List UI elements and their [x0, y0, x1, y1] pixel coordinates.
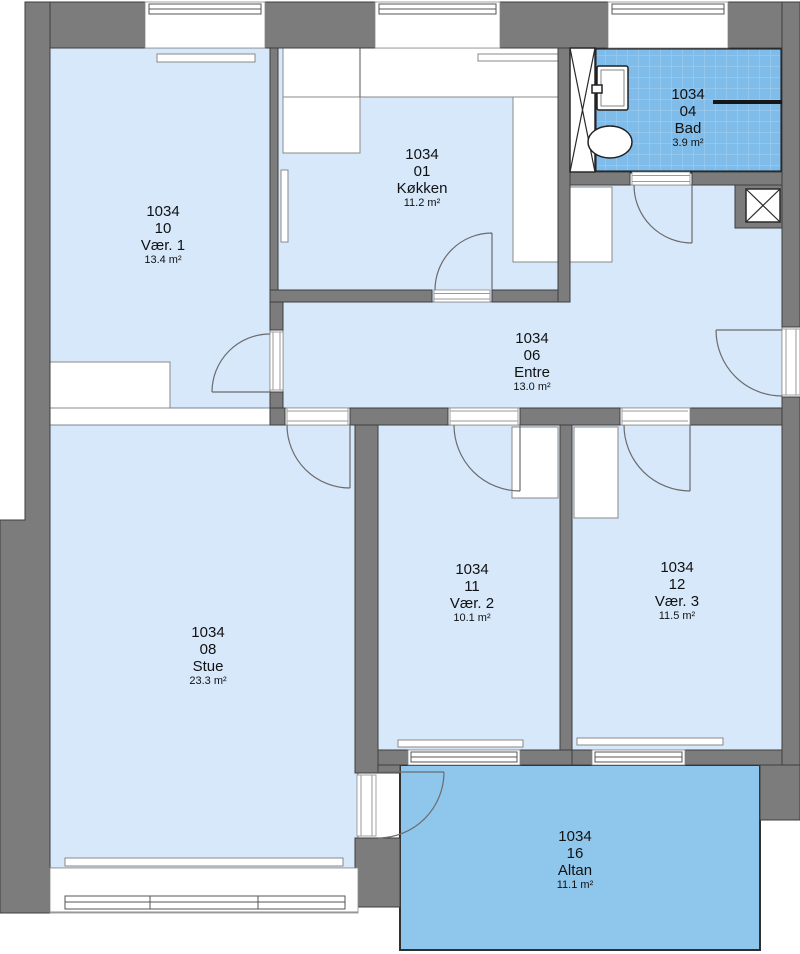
room-name: Vær. 3 — [655, 593, 699, 610]
wall-koekken-bottom — [270, 290, 432, 302]
vaer3-radiator — [577, 738, 723, 745]
room-area: 11.2 m² — [397, 197, 448, 210]
door-vaer1 — [270, 332, 283, 390]
wall-bad-bottom — [570, 172, 630, 185]
wall-segment — [350, 408, 448, 425]
wall-segment — [378, 750, 408, 765]
room-name: Vær. 2 — [450, 595, 494, 612]
wall-corner — [760, 765, 800, 820]
sink-tap — [592, 85, 602, 93]
vaer2-radiator — [398, 740, 523, 747]
room-id: 1034 — [557, 828, 593, 845]
wall-segment — [685, 750, 782, 765]
wall-right-lower — [782, 397, 800, 820]
room-number: 06 — [513, 347, 550, 364]
room-area: 13.4 m² — [141, 254, 185, 267]
room-number: 11 — [450, 578, 494, 595]
room-label-vaer1: 1034 10 Vær. 1 13.4 m² — [141, 203, 185, 267]
wall-segment — [270, 302, 283, 330]
room-label-altan: 1034 16 Altan 11.1 m² — [557, 828, 593, 892]
room-name: Entre — [513, 364, 550, 381]
room-number: 16 — [557, 845, 593, 862]
vaer2-wardrobe — [512, 427, 558, 498]
room-number: 12 — [655, 576, 699, 593]
room-id: 1034 — [655, 559, 699, 576]
room-label-koekken: 1034 01 Køkken 11.2 m² — [397, 146, 448, 210]
room-name: Stue — [189, 658, 226, 675]
door-bad — [632, 172, 690, 185]
wall-segment — [520, 750, 572, 765]
kitchen-radiator — [478, 54, 560, 61]
wall-vaer1-koekken — [270, 48, 278, 302]
wall-segment — [500, 2, 608, 48]
room-id: 1034 — [513, 330, 550, 347]
room-number: 08 — [189, 641, 226, 658]
room-number: 01 — [397, 163, 448, 180]
room-label-stue: 1034 08 Stue 23.3 m² — [189, 624, 226, 688]
room-name: Bad — [671, 120, 704, 137]
wall-segment — [270, 392, 283, 408]
room-area: 11.1 m² — [557, 879, 593, 892]
wall-segment — [690, 408, 782, 425]
room-id: 1034 — [189, 624, 226, 641]
vaer3-wardrobe — [574, 427, 618, 518]
room-area: 13.0 m² — [513, 381, 550, 394]
vaer1-radiator — [157, 54, 255, 62]
room-id: 1034 — [141, 203, 185, 220]
stue-radiator — [65, 858, 343, 866]
wall-segment — [572, 750, 592, 765]
wall-stue-vaer2 — [355, 425, 378, 773]
room-label-vaer2: 1034 11 Vær. 2 10.1 m² — [450, 561, 494, 625]
room-label-bad: 1034 04 Bad 3.9 m² — [671, 86, 704, 150]
room-id: 1034 — [450, 561, 494, 578]
room-number: 04 — [671, 103, 704, 120]
door-koekken — [434, 290, 490, 302]
vaer1-wardrobe — [50, 362, 170, 408]
room-number: 10 — [141, 220, 185, 237]
wall-entre-bottom — [270, 408, 285, 425]
bathroom-toilet — [588, 126, 632, 158]
wall-segment — [265, 2, 375, 48]
room-area: 10.1 m² — [450, 612, 494, 625]
room-name: Køkken — [397, 180, 448, 197]
wall-vaer2-vaer3 — [560, 425, 572, 750]
room-area: 23.3 m² — [189, 675, 226, 688]
kitchen-side-radiator — [281, 170, 288, 242]
wall-segment — [520, 408, 620, 425]
wall-segment — [355, 838, 400, 907]
wall-koekken-right — [558, 48, 570, 302]
wall-right-upper — [782, 2, 800, 327]
entre-wardrobe — [570, 187, 612, 262]
room-label-entre: 1034 06 Entre 13.0 m² — [513, 330, 550, 394]
room-name: Vær. 1 — [141, 237, 185, 254]
room-name: Altan — [557, 862, 593, 879]
wall-segment — [692, 172, 782, 185]
floor-plan: 1034 10 Vær. 1 13.4 m² 1034 01 Køkken 11… — [0, 0, 800, 954]
wall-left — [0, 2, 50, 913]
room-area: 11.5 m² — [655, 610, 699, 623]
door-entrance — [782, 329, 800, 395]
room-area: 3.9 m² — [671, 137, 704, 150]
room-id: 1034 — [671, 86, 704, 103]
door-altan — [357, 775, 376, 836]
room-id: 1034 — [397, 146, 448, 163]
room-label-vaer3: 1034 12 Vær. 3 11.5 m² — [655, 559, 699, 623]
